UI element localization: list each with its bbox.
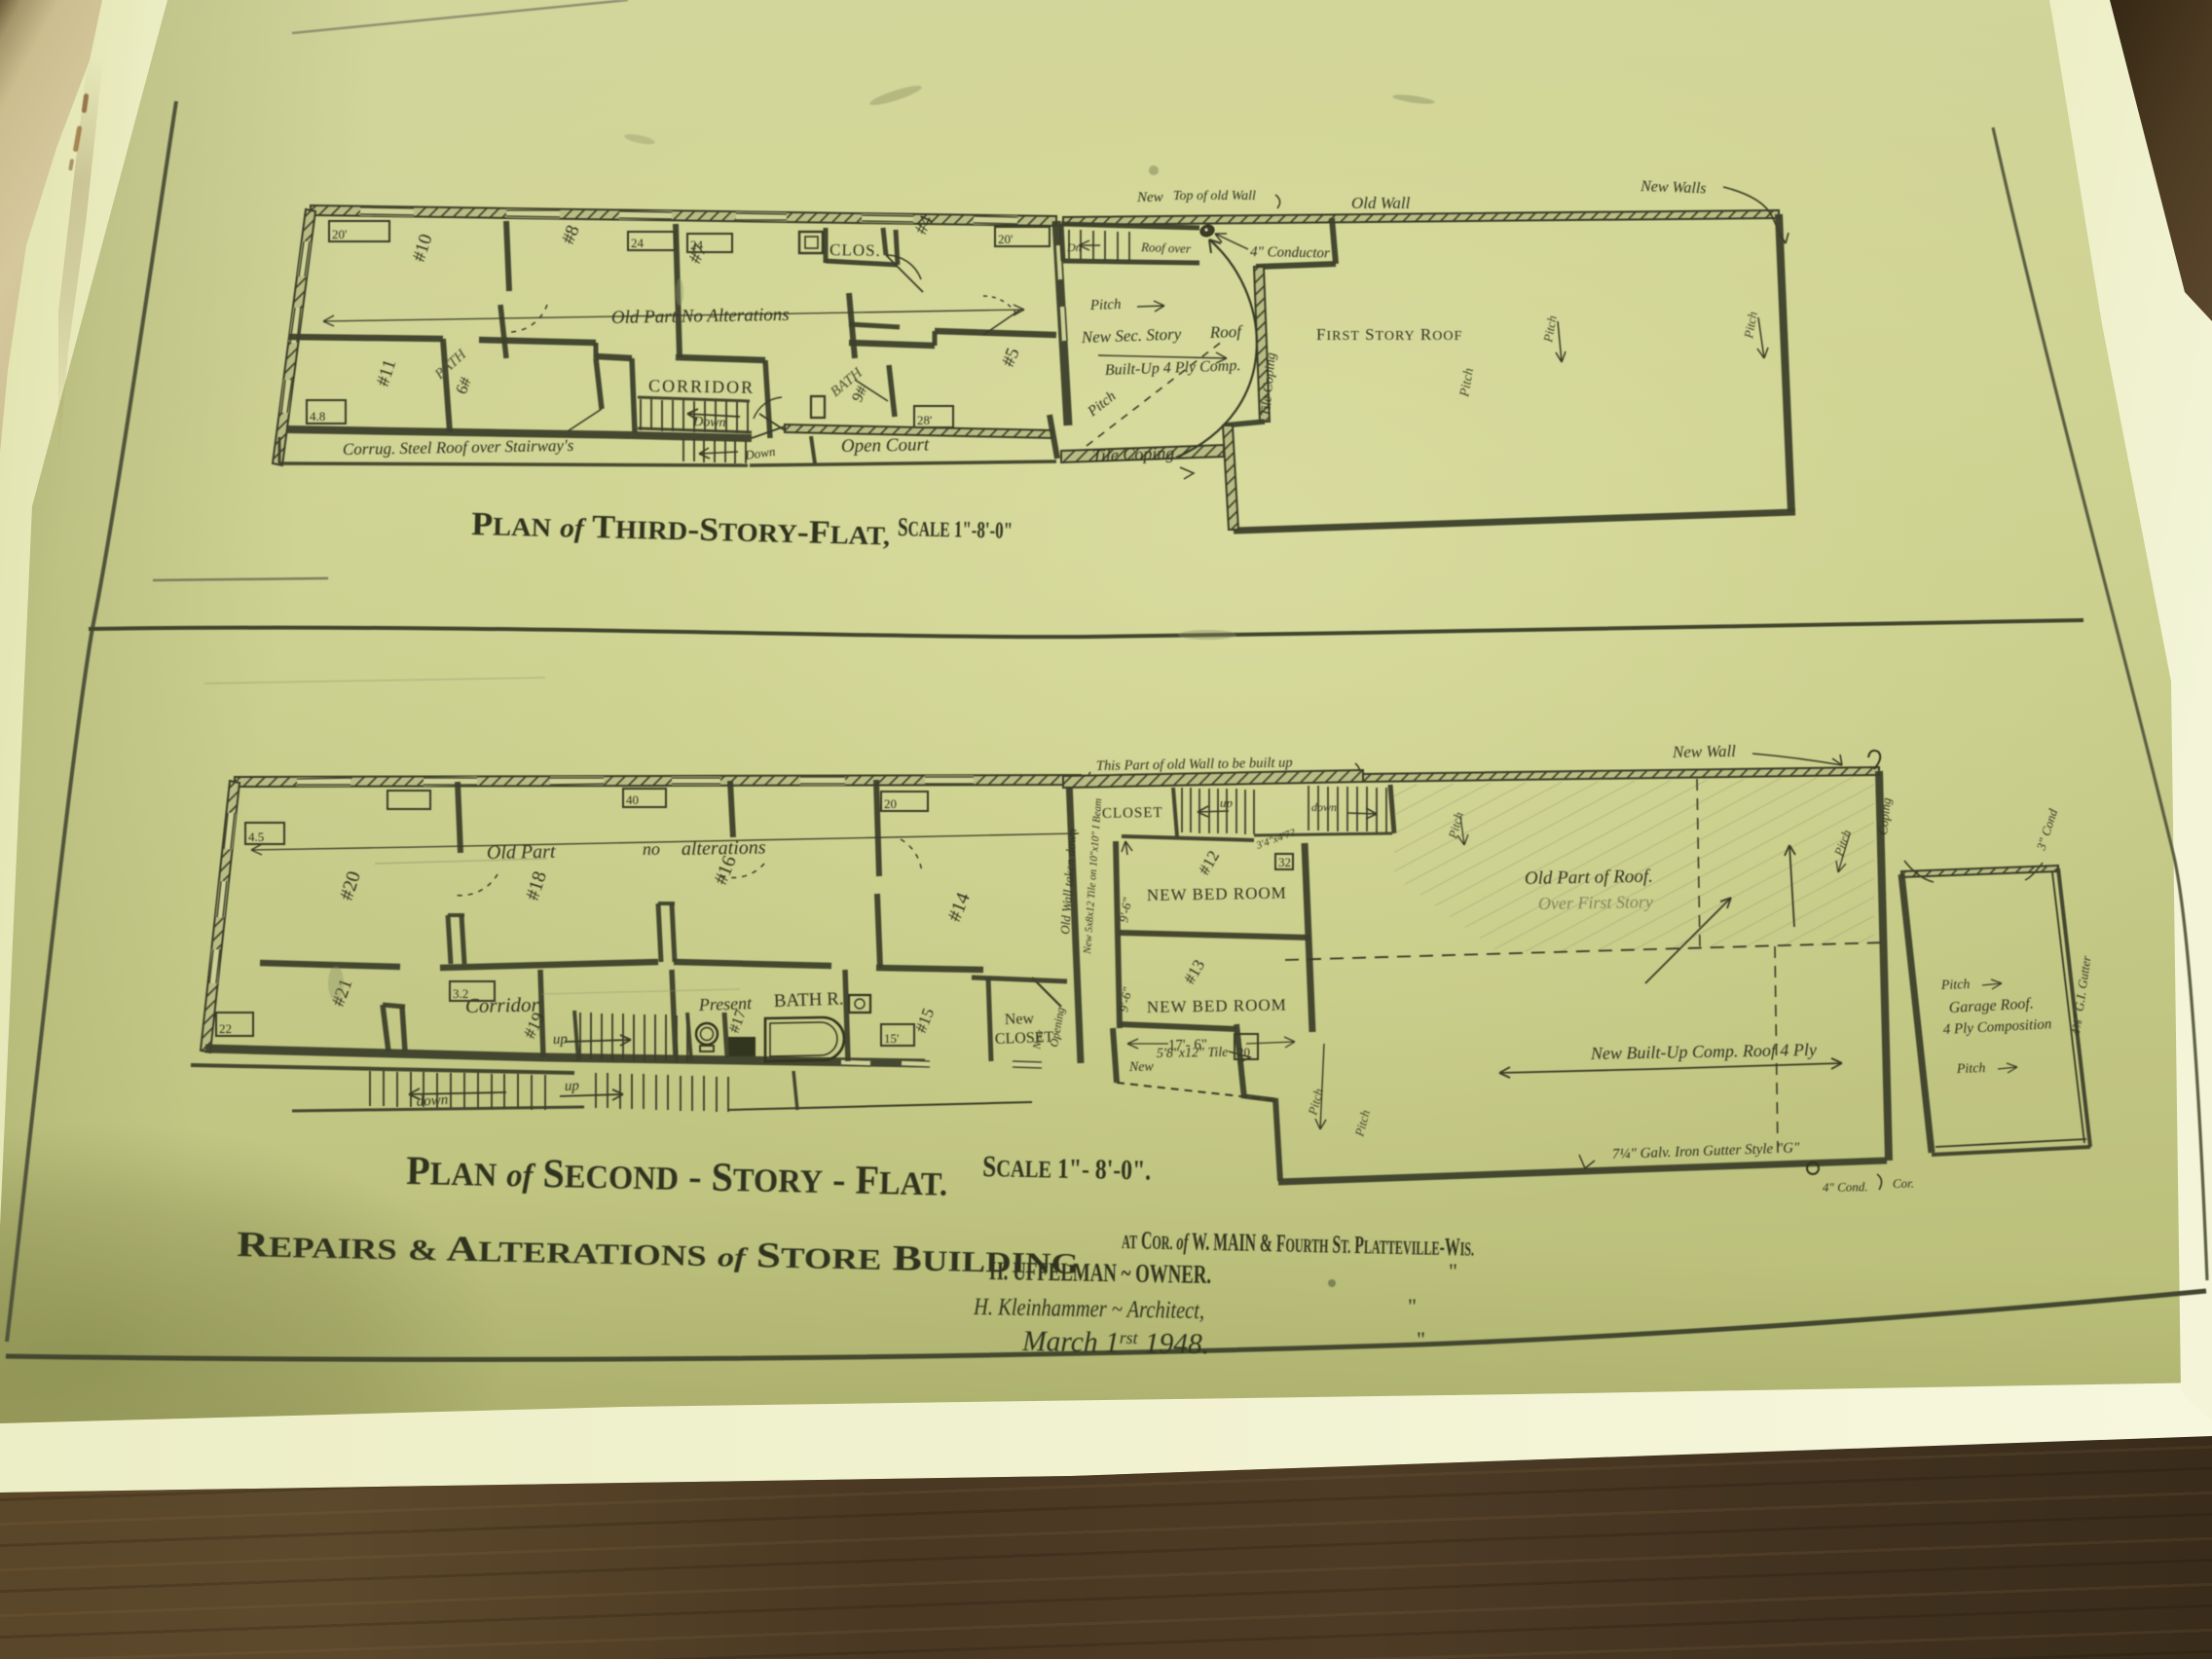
svg-text:#15: #15 [911, 1006, 938, 1036]
svg-text:Down: Down [743, 444, 776, 462]
svg-text:#14: #14 [943, 890, 975, 925]
svg-text:New: New [1128, 1060, 1155, 1075]
svg-text:Corrug. Steel Roof over St: Corrug. Steel Roof over Stairway's [343, 436, 574, 459]
svg-text:4" Cond.: 4" Cond. [1823, 1179, 1868, 1195]
svg-text:40: 40 [626, 793, 639, 807]
svg-text:PLAN of SECOND - STORY - FLAT.: PLAN of SECOND - STORY - FLAT. [406, 1149, 948, 1205]
svg-text:Old Part of Roof.: Old Part of Roof. [1525, 866, 1653, 889]
svg-text:Roof over: Roof over [1140, 240, 1192, 256]
svg-text:28': 28' [917, 413, 932, 427]
svg-text:Cor.: Cor. [1893, 1176, 1914, 1191]
svg-text:Down: Down [692, 415, 726, 430]
svg-text:CLOS.: CLOS. [829, 240, 881, 260]
svg-text:Open Court: Open Court [841, 434, 930, 457]
svg-text:Pitch: Pitch [1085, 388, 1120, 421]
svg-text:": " [1408, 1294, 1417, 1318]
svg-text:7¼" Galv. Iron Gutter Style ": 7¼" Galv. Iron Gutter Style "G" [1612, 1140, 1801, 1162]
svg-text:22: 22 [219, 1021, 232, 1036]
svg-text:9'-6": 9'-6" [1116, 896, 1134, 923]
svg-text:up: up [553, 1031, 569, 1048]
svg-text:up: up [565, 1078, 580, 1094]
svg-text:20: 20 [1237, 1045, 1250, 1059]
svg-text:Old Wall: Old Wall [1351, 194, 1411, 212]
svg-text:down: down [416, 1092, 449, 1110]
svg-text:Top of old Wall: Top of old Wall [1173, 189, 1256, 203]
svg-text:Pitch: Pitch [1351, 1108, 1373, 1138]
svg-text:6#: 6# [452, 374, 475, 396]
svg-text:#11: #11 [373, 357, 401, 389]
svg-text:NEW BED ROOM: NEW BED ROOM [1147, 883, 1287, 904]
svg-text:Coping: Coping [1875, 796, 1894, 835]
svg-text:#13: #13 [1180, 956, 1208, 987]
svg-text:#18: #18 [522, 868, 551, 903]
svg-text:5'8"x12" Tile: 5'8"x12" Tile [1157, 1046, 1229, 1061]
svg-text:New Built-Up Comp. Roof 4 Ply: New Built-Up Comp. Roof 4 Ply [1590, 1040, 1817, 1063]
svg-text:32: 32 [1278, 855, 1291, 869]
svg-text:Roof: Roof [1208, 322, 1243, 342]
svg-text:24: 24 [631, 236, 645, 250]
svg-text:SCALE 1"- 8'-0".: SCALE 1"- 8'-0". [982, 1149, 1152, 1187]
svg-text:3'4"x4'7?: 3'4"x4'7? [1254, 827, 1298, 852]
svg-text:CLOSET: CLOSET [1102, 805, 1163, 822]
svg-text:New: New [1031, 1029, 1047, 1051]
svg-text:#7: #7 [684, 241, 711, 267]
svg-text:3.2: 3.2 [453, 986, 468, 1001]
svg-text:Opening: Opening [1047, 1006, 1067, 1048]
svg-text:REPAIRS & ALTERATIONS of STORE: REPAIRS & ALTERATIONS of STORE BUILDING [237, 1225, 1080, 1282]
svg-text:Pitch: Pitch [1940, 977, 1971, 993]
svg-text:Pitch: Pitch [1089, 297, 1122, 313]
svg-text:": " [1417, 1327, 1425, 1351]
svg-text:Built-Up 4 Ply Comp.: Built-Up 4 Ply Comp. [1105, 357, 1241, 379]
svg-text:4 Ply Composition: 4 Ply Composition [1942, 1016, 2051, 1038]
svg-text:up: up [1220, 795, 1234, 810]
svg-text:New Walls: New Walls [1640, 178, 1707, 197]
svg-text:Dn: Dn [1066, 240, 1082, 254]
svg-text:FIRST STORY ROOF: FIRST STORY ROOF [1316, 325, 1462, 344]
svg-text:CORRIDOR: CORRIDOR [648, 376, 755, 397]
svg-text:Pitch: Pitch [1956, 1061, 1986, 1077]
svg-text:BATH R.: BATH R. [773, 989, 843, 1012]
svg-text:": " [1449, 1259, 1457, 1283]
svg-text:4.8: 4.8 [310, 409, 325, 424]
svg-text:#5: #5 [998, 345, 1024, 369]
svg-text:Old Part No Alterations: Old Part No Alterations [611, 305, 790, 328]
svg-text:20': 20' [998, 232, 1013, 246]
svg-text:#20: #20 [336, 868, 365, 903]
svg-text:20': 20' [332, 227, 347, 241]
svg-text:Pitch: Pitch [1457, 367, 1477, 399]
svg-text:PLAN of THIRD-STORY-FLAT,: PLAN of THIRD-STORY-FLAT, [471, 506, 891, 552]
svg-text:March 1rst 1948.: March 1rst 1948. [1021, 1325, 1210, 1360]
svg-text:NEW BED ROOM: NEW BED ROOM [1147, 995, 1287, 1016]
svg-text:SCALE 1"-8'-0": SCALE 1"-8'-0" [898, 512, 1014, 544]
svg-text:AT COR. of W. MAIN & FOURTH ST: AT COR. of W. MAIN & FOURTH ST. PLATTEVI… [1122, 1226, 1475, 1262]
svg-text:New: New [1136, 190, 1163, 205]
svg-text:#10: #10 [409, 232, 437, 265]
svg-text:Over First Story: Over First Story [1538, 892, 1653, 913]
svg-text:4.5: 4.5 [248, 829, 264, 844]
svg-text:New 5x8x12 Tile on 10"x10" I B: New 5x8x12 Tile on 10"x10" I Beam [1082, 798, 1104, 956]
svg-text:9'-6": 9'-6" [1116, 985, 1134, 1013]
svg-text:3" Cond: 3" Cond [2033, 807, 2060, 853]
svg-text:H. UFFELMAN ~ OWNER.: H. UFFELMAN ~ OWNER. [989, 1256, 1211, 1289]
svg-text:#12: #12 [1195, 847, 1223, 878]
svg-text:Pitch: Pitch [1305, 1087, 1326, 1117]
svg-text:Tile Coping: Tile Coping [1091, 443, 1174, 465]
svg-text:Present: Present [697, 993, 753, 1014]
svg-text:H. Kleinhammer ~ Architect,: H. Kleinhammer ~ Architect, [973, 1294, 1204, 1324]
svg-text:15': 15' [884, 1031, 899, 1046]
svg-text:New: New [1005, 1011, 1035, 1028]
svg-text:down: down [1311, 800, 1337, 814]
svg-text:Pitch: Pitch [1540, 314, 1560, 345]
svg-text:#8: #8 [558, 222, 584, 246]
svg-text:20: 20 [884, 796, 897, 811]
svg-text:New Wall: New Wall [1672, 742, 1737, 761]
svg-text:4" Conductor: 4" Conductor [1250, 244, 1330, 261]
svg-text:Pitch: Pitch [1741, 311, 1760, 341]
svg-text:New Sec. Story: New Sec. Story [1080, 324, 1182, 347]
svg-text:Garage Roof.: Garage Roof. [1948, 995, 2034, 1016]
